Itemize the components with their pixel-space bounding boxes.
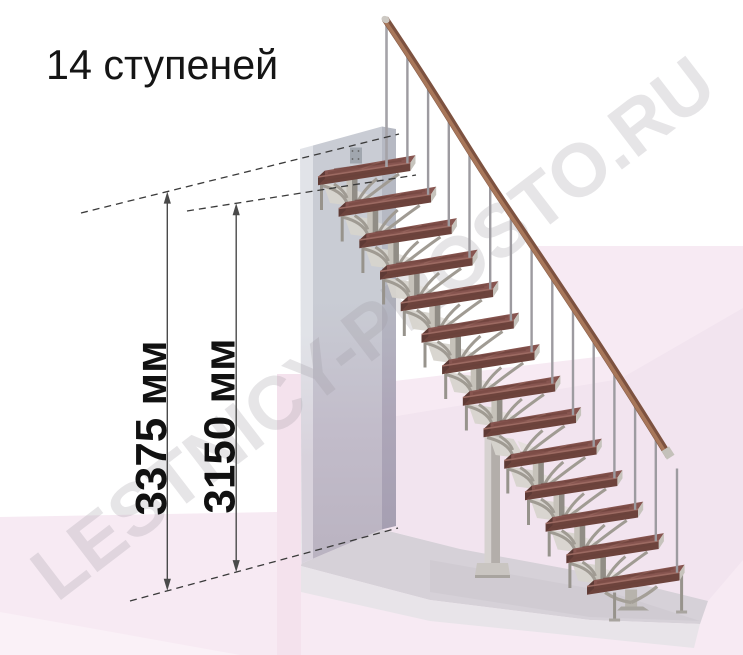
svg-text:14 ступеней: 14 ступеней [46, 42, 278, 88]
svg-text:3150 мм: 3150 мм [196, 338, 245, 513]
svg-text:3375 мм: 3375 мм [127, 340, 176, 515]
